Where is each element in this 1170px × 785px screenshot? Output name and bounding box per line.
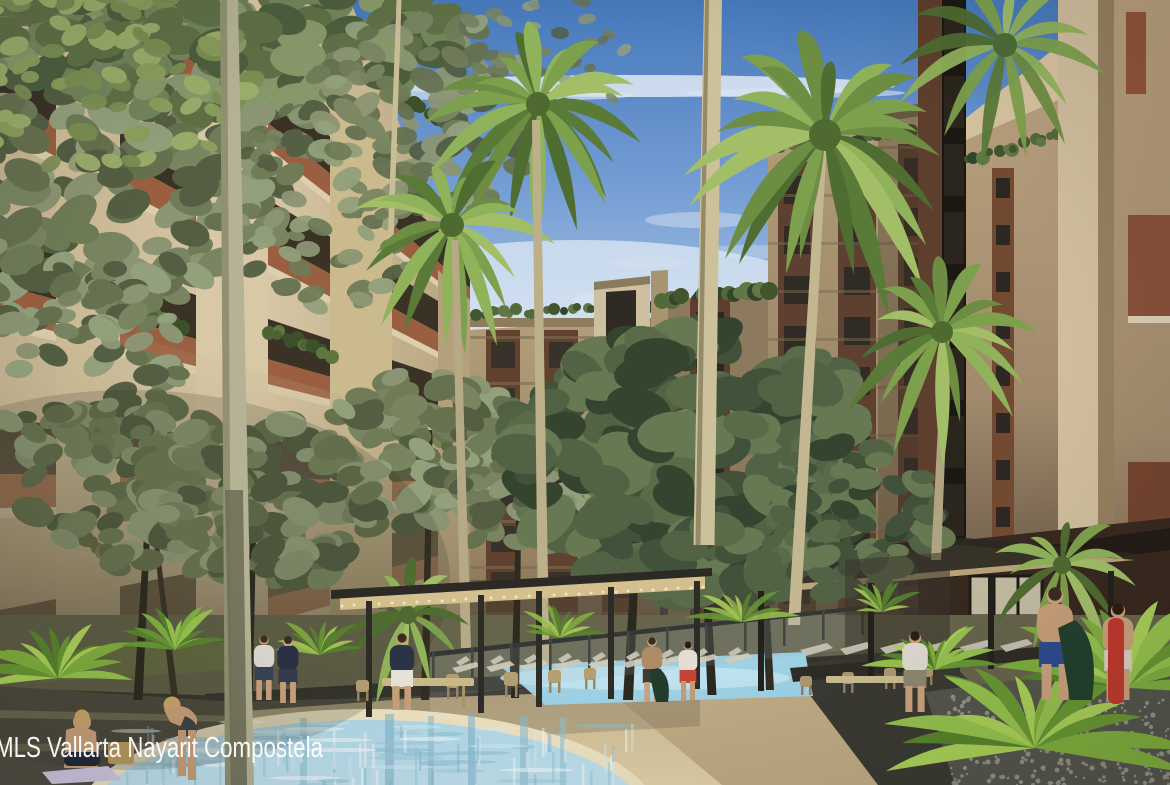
svg-text:MLS Vallarta Nayarit Compostel: MLS Vallarta Nayarit Compostela xyxy=(0,732,324,764)
